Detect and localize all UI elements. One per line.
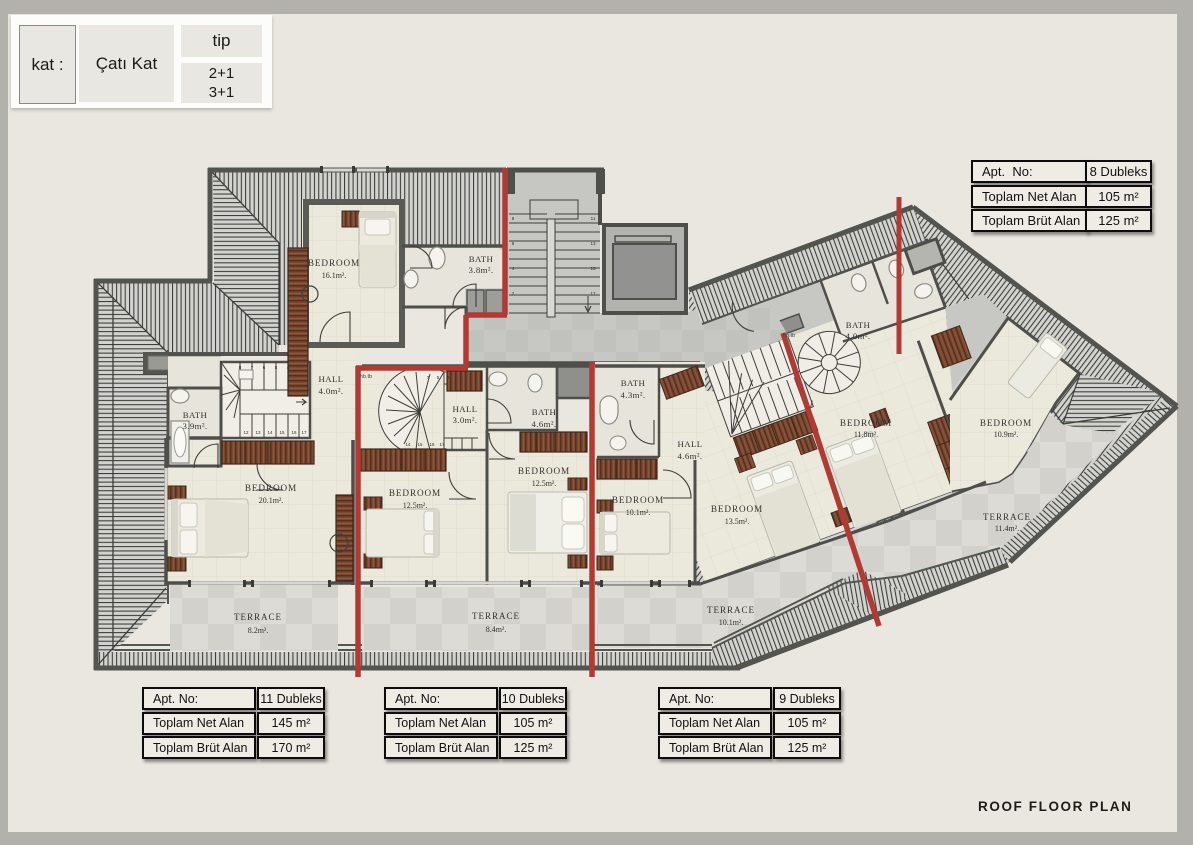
- svg-text:HALL: HALL: [452, 404, 477, 414]
- svg-text:BATH: BATH: [621, 378, 646, 388]
- svg-text:17: 17: [439, 442, 445, 447]
- svg-text:4.0m².: 4.0m².: [845, 331, 870, 341]
- svg-text:16: 16: [291, 430, 297, 435]
- svg-text:10.9m².: 10.9m².: [994, 430, 1019, 439]
- svg-text:13.5m².: 13.5m².: [725, 517, 750, 526]
- svg-text:12.5m².: 12.5m².: [403, 501, 428, 510]
- svg-text:13: 13: [590, 241, 596, 246]
- svg-text:4.6m².: 4.6m².: [531, 419, 556, 429]
- svg-text:8.2m².: 8.2m².: [248, 626, 269, 635]
- svg-text:4.3m².: 4.3m².: [620, 390, 645, 400]
- svg-text:13: 13: [255, 430, 261, 435]
- svg-text:HALL: HALL: [677, 439, 702, 449]
- svg-text:20.1m².: 20.1m².: [259, 496, 284, 505]
- svg-text:4.6m².: 4.6m².: [677, 451, 702, 461]
- svg-text:11.8m².: 11.8m².: [854, 430, 878, 439]
- svg-text:10.1m².: 10.1m².: [626, 508, 651, 517]
- svg-text:BATH: BATH: [183, 410, 208, 420]
- svg-text:BATH: BATH: [846, 320, 871, 330]
- svg-text:3.0m².: 3.0m².: [452, 415, 477, 425]
- svg-text:BEDROOM: BEDROOM: [308, 258, 360, 268]
- svg-text:11.4m².: 11.4m².: [995, 524, 1019, 533]
- svg-text:17: 17: [301, 430, 307, 435]
- svg-text:HALL: HALL: [318, 374, 343, 384]
- svg-text:TERRACE: TERRACE: [472, 611, 520, 621]
- svg-text:BEDROOM: BEDROOM: [518, 466, 570, 476]
- svg-text:16: 16: [429, 442, 435, 447]
- svg-text:15: 15: [417, 442, 423, 447]
- svg-text:TERRACE: TERRACE: [983, 512, 1031, 522]
- svg-text:BEDROOM: BEDROOM: [389, 488, 441, 498]
- svg-text:3.9m².: 3.9m².: [182, 421, 207, 431]
- svg-text:4.0m².: 4.0m².: [318, 386, 343, 396]
- svg-text:16.1m².: 16.1m².: [322, 271, 347, 280]
- svg-text:BEDROOM: BEDROOM: [711, 504, 763, 514]
- svg-text:12.5m².: 12.5m².: [532, 479, 557, 488]
- svg-text:BEDROOM: BEDROOM: [840, 418, 892, 428]
- svg-text:15: 15: [279, 430, 285, 435]
- svg-text:hb.tb: hb.tb: [783, 333, 795, 339]
- svg-text:BATH: BATH: [532, 407, 557, 417]
- svg-text:10.1m².: 10.1m².: [719, 618, 744, 627]
- svg-text:BEDROOM: BEDROOM: [980, 418, 1032, 428]
- svg-text:3.8m².: 3.8m².: [468, 265, 493, 275]
- svg-text:14: 14: [267, 430, 273, 435]
- svg-text:8.4m².: 8.4m².: [486, 625, 507, 634]
- svg-text:15: 15: [590, 266, 596, 271]
- svg-text:hb.tb: hb.tb: [360, 374, 372, 380]
- svg-text:BEDROOM: BEDROOM: [612, 495, 664, 505]
- svg-text:14: 14: [405, 442, 411, 447]
- svg-text:11: 11: [591, 216, 596, 221]
- svg-text:TERRACE: TERRACE: [707, 605, 755, 615]
- svg-text:BATH: BATH: [469, 254, 494, 264]
- svg-text:TERRACE: TERRACE: [234, 612, 282, 622]
- svg-text:BEDROOM: BEDROOM: [245, 483, 297, 493]
- svg-text:12: 12: [243, 430, 249, 435]
- svg-text:17: 17: [590, 291, 596, 296]
